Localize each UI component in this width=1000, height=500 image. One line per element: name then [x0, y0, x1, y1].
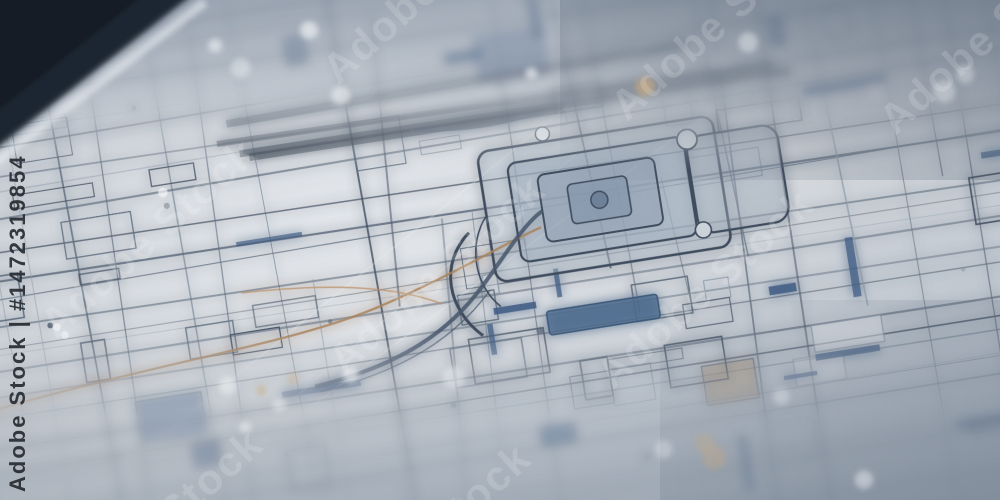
- bokeh-dot: [655, 441, 673, 459]
- bokeh-dot: [702, 445, 727, 470]
- bottom-right-shadow-tint: [660, 300, 1000, 500]
- bokeh-dot: [287, 373, 299, 385]
- bokeh-dot: [219, 376, 237, 394]
- bokeh-dot: [208, 39, 222, 53]
- stock-photo-blueprint-map: Adobe Stock Adobe Stock Adobe Stock Adob…: [0, 0, 1000, 500]
- bokeh-dot: [231, 58, 251, 78]
- bokeh-dot: [773, 388, 790, 405]
- bokeh-dot: [738, 32, 758, 52]
- bokeh-dot: [525, 67, 537, 79]
- bokeh-dot: [273, 398, 286, 411]
- photo-canvas: Adobe Stock Adobe Stock Adobe Stock Adob…: [0, 0, 1000, 500]
- watermark-sidebar-label: Adobe Stock | #1472319854: [5, 155, 30, 492]
- bokeh-dot: [855, 471, 873, 489]
- bokeh-dot: [256, 385, 266, 395]
- bokeh-dot: [300, 21, 318, 39]
- bokeh-dot: [443, 366, 465, 388]
